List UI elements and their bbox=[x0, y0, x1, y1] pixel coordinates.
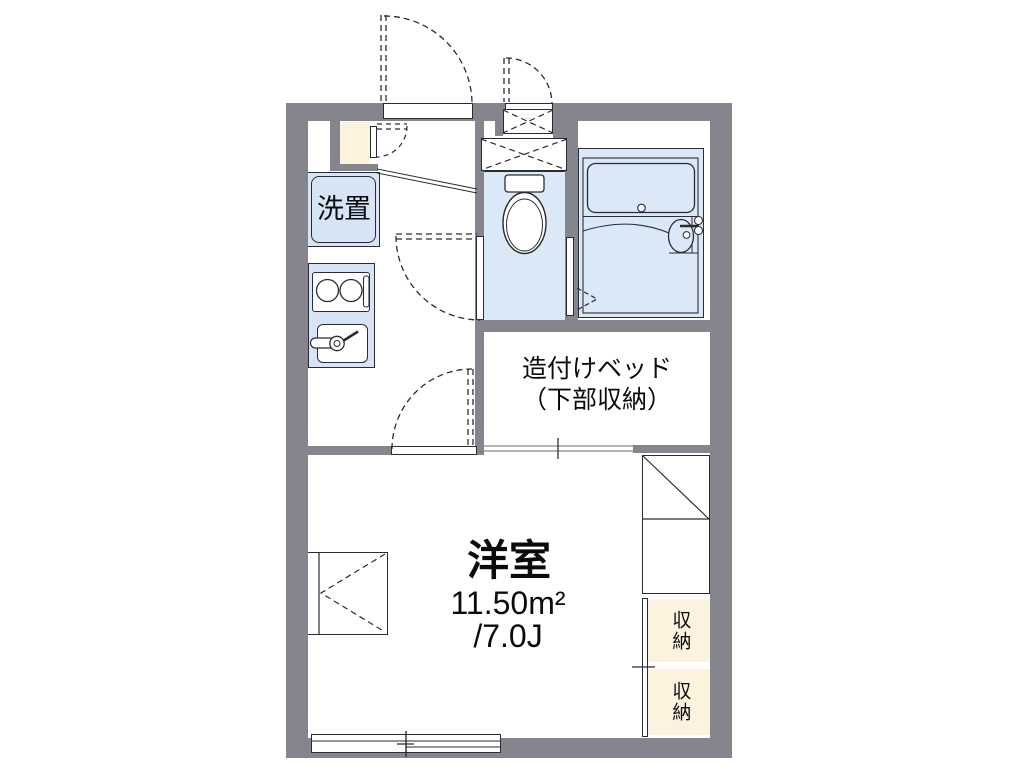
bed-label: 造付けベッド （下部収納） bbox=[522, 354, 672, 416]
kitchen-sink bbox=[317, 324, 368, 363]
wall-bath-bed bbox=[475, 320, 710, 332]
sliding-window bbox=[311, 734, 501, 753]
gas-stove bbox=[312, 272, 370, 312]
refrigerator-space bbox=[642, 455, 710, 594]
shoe-cabinet-door-leaf bbox=[370, 126, 377, 158]
casement-window-symbol bbox=[307, 552, 388, 635]
room-tatami-label: /7.0J bbox=[473, 617, 542, 655]
wall-entrance-stub-h bbox=[338, 164, 378, 171]
laundry-label: 洗置 bbox=[317, 193, 371, 225]
bed-label-line1: 造付けベッド bbox=[522, 354, 672, 385]
room-door-threshold bbox=[391, 446, 477, 455]
entrance-step bbox=[338, 122, 370, 166]
hatch-box-large bbox=[481, 138, 567, 171]
room-name-label: 洋室 bbox=[467, 536, 551, 586]
storage-lower-label: 収納 bbox=[668, 681, 691, 723]
unit-bath-room bbox=[578, 148, 704, 318]
wall-mainroom-top bbox=[286, 446, 391, 455]
toilet-door-swing bbox=[396, 234, 480, 320]
service-door-swing bbox=[504, 58, 552, 104]
room-door-swing bbox=[392, 369, 473, 449]
entrance-door-leaf bbox=[383, 103, 473, 119]
entrance-step-line bbox=[377, 169, 477, 193]
bed-opening-line bbox=[484, 438, 633, 459]
wall-right bbox=[710, 103, 732, 758]
storage-upper-label: 収納 bbox=[668, 610, 691, 652]
wall-left bbox=[286, 103, 308, 758]
wall-stub-left-of-hatch bbox=[495, 121, 503, 136]
toilet-door-leaf bbox=[476, 236, 484, 320]
shoe-cabinet-door-swing bbox=[377, 124, 407, 157]
floor-plan: 洗置 造付けベッド （下部収納） 洋室 11.50m² /7.0J 収納 収納 bbox=[0, 0, 1016, 772]
toilet-room bbox=[480, 171, 568, 322]
wall-bed-bottom bbox=[633, 445, 710, 453]
storage-sliding-door bbox=[642, 598, 648, 737]
entrance-door-swing bbox=[381, 15, 472, 103]
bed-label-line2: （下部収納） bbox=[522, 385, 672, 416]
hatch-box-small bbox=[503, 109, 553, 134]
bath-folding-door bbox=[566, 237, 574, 316]
